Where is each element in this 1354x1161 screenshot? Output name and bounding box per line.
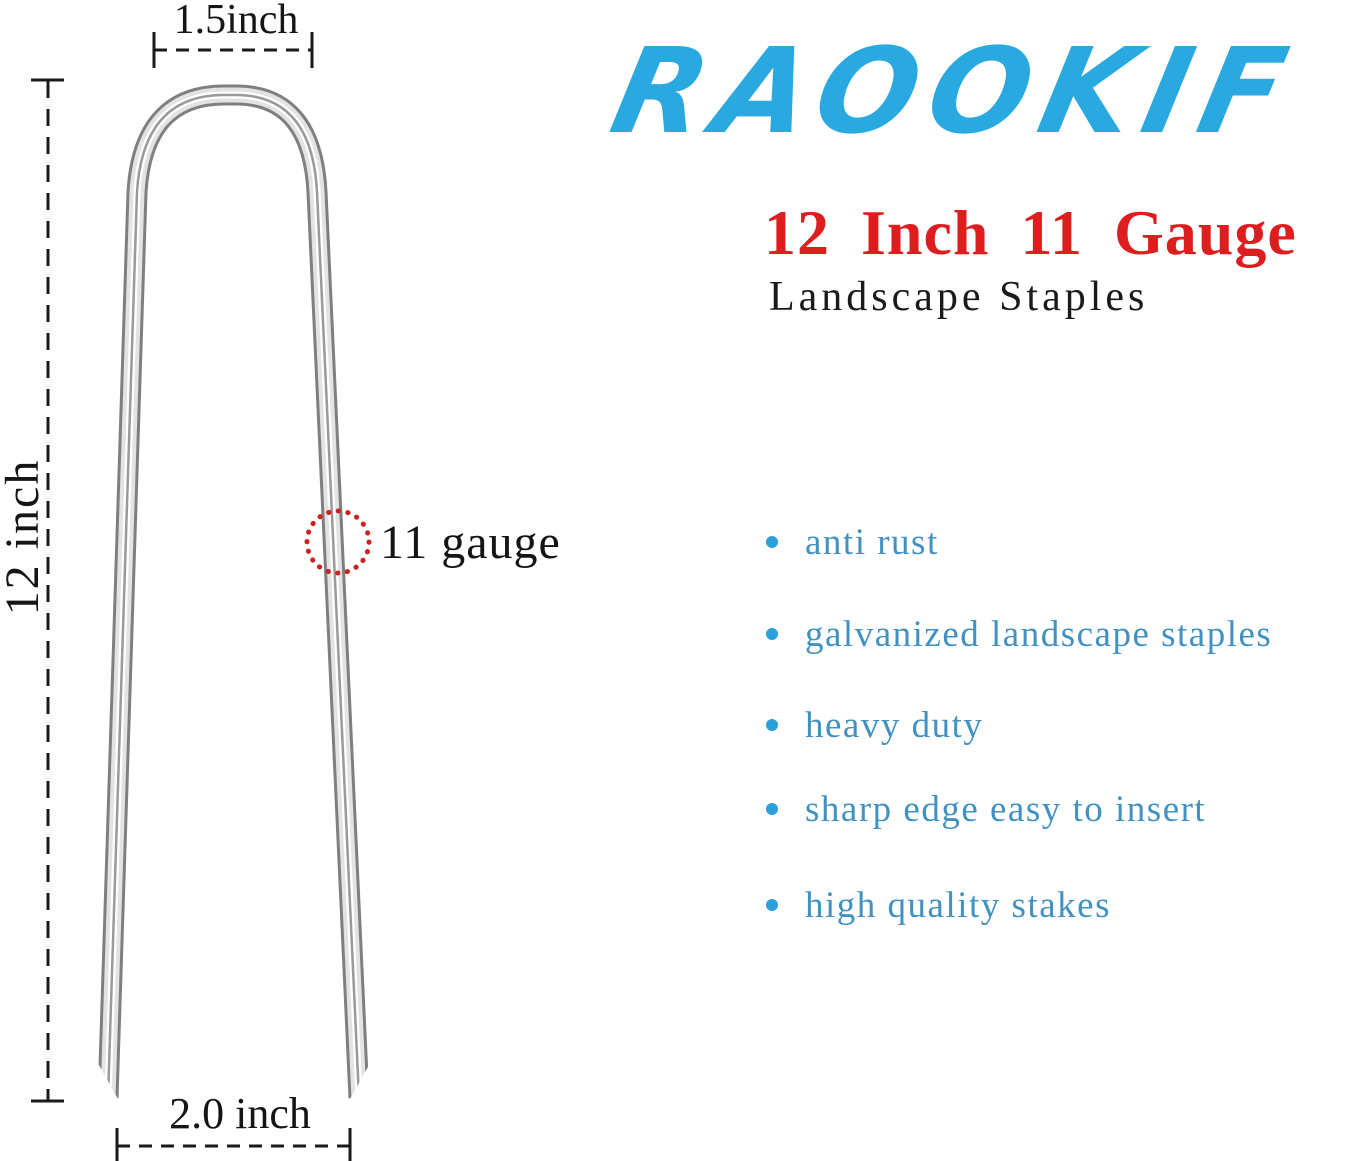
height-dimension: 12 inch <box>0 80 64 1101</box>
feature-label: anti rust <box>805 521 939 564</box>
product-infographic: 1.5inch 12 inch 11 gauge 2.0 inch RAOOKI… <box>0 0 1354 1161</box>
feature-label: galvanized landscape staples <box>805 613 1272 656</box>
product-title: 12 Inch 11 Gauge <box>764 198 1297 268</box>
brand-logo: RAOOKIF <box>540 18 1354 166</box>
feature-label: high quality stakes <box>805 884 1111 927</box>
feature-item: galvanized landscape staples <box>766 607 1272 661</box>
top-width-label: 1.5inch <box>174 0 299 43</box>
feature-label: sharp edge easy to insert <box>805 788 1206 831</box>
bottom-width-label: 2.0 inch <box>169 1089 311 1138</box>
bullet-dot-icon <box>766 899 778 911</box>
feature-item: sharp edge easy to insert <box>766 782 1206 836</box>
bullet-dot-icon <box>766 803 778 815</box>
feature-item: heavy duty <box>766 698 983 752</box>
feature-item: high quality stakes <box>766 878 1111 932</box>
feature-item: anti rust <box>766 515 939 569</box>
bullet-dot-icon <box>766 628 778 640</box>
product-subtitle: Landscape Staples <box>769 274 1148 320</box>
height-label: 12 inch <box>0 459 49 616</box>
bottom-width-dimension: 2.0 inch <box>117 1089 350 1161</box>
staple-illustration <box>95 95 373 1108</box>
top-width-dimension: 1.5inch <box>154 0 312 68</box>
gauge-label: 11 gauge <box>380 516 560 569</box>
gauge-callout: 11 gauge <box>307 511 560 573</box>
feature-label: heavy duty <box>805 704 983 747</box>
staple-diagram: 1.5inch 12 inch 11 gauge 2.0 inch <box>0 0 560 1161</box>
bullet-dot-icon <box>766 719 778 731</box>
bullet-dot-icon <box>766 536 778 548</box>
